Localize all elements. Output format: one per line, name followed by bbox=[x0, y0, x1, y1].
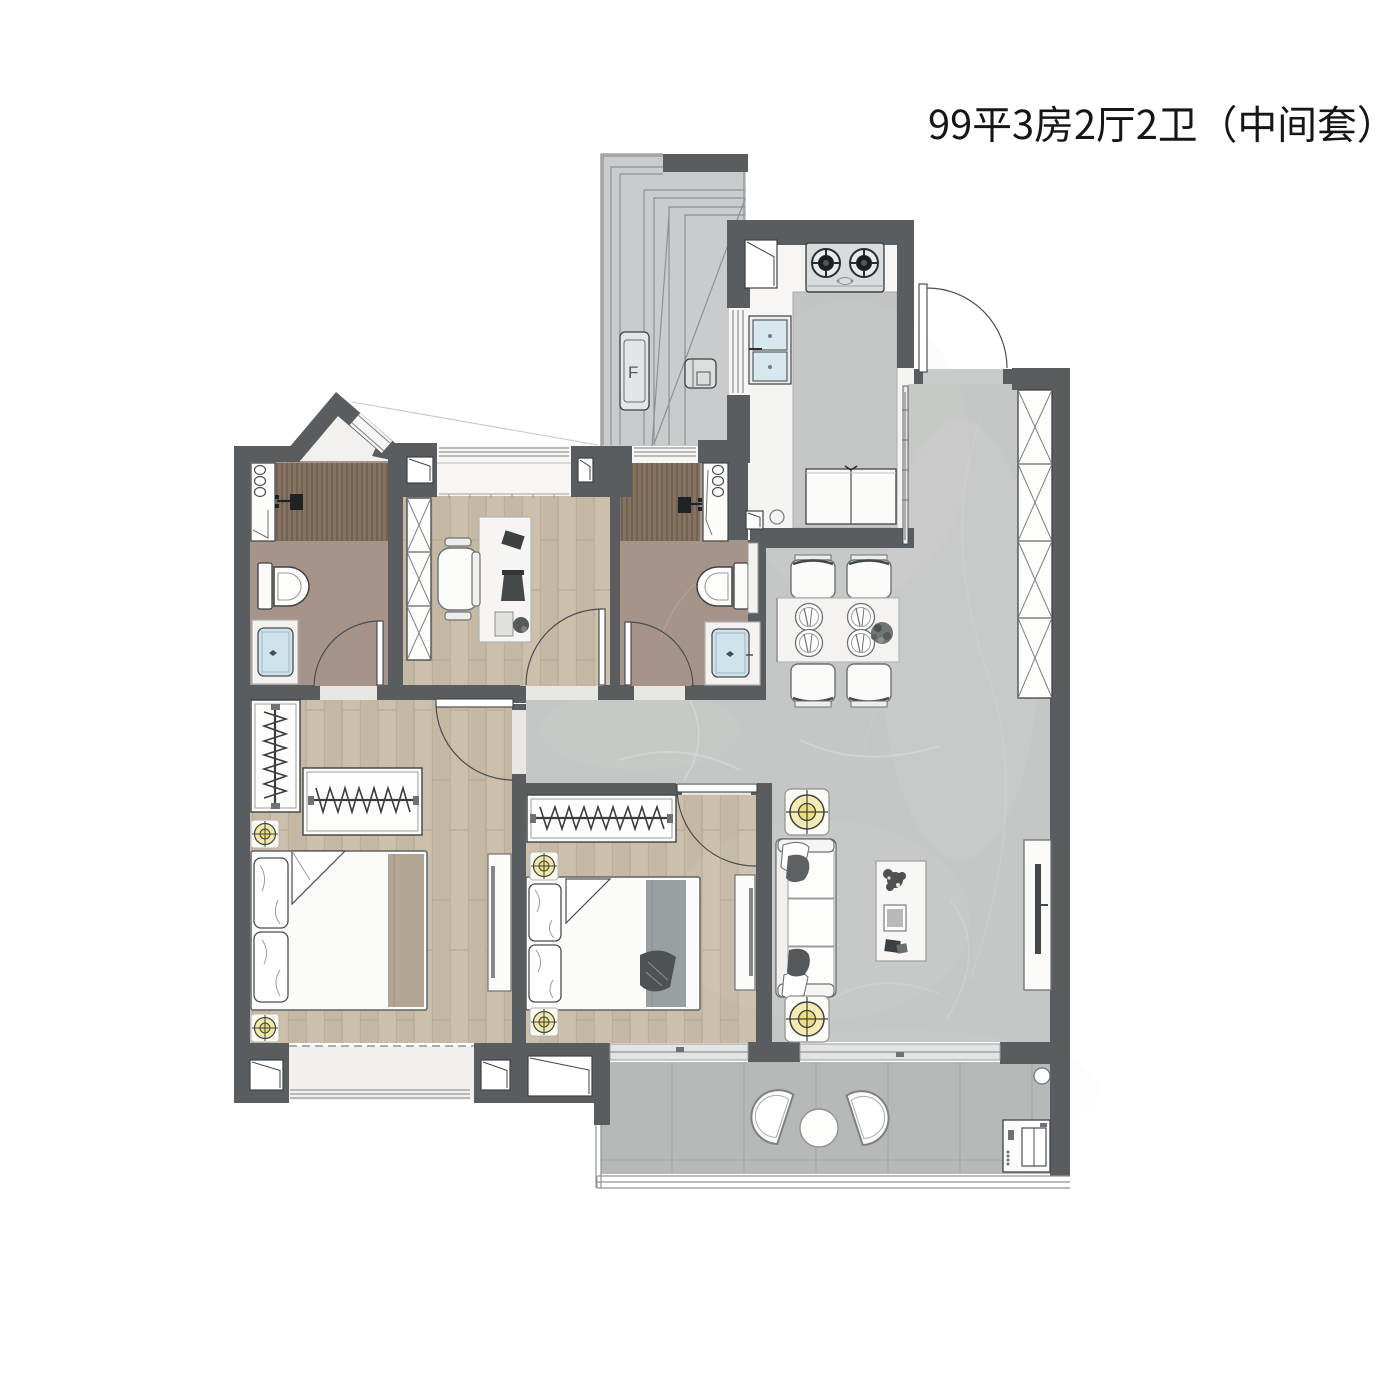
svg-text:F: F bbox=[628, 363, 638, 382]
